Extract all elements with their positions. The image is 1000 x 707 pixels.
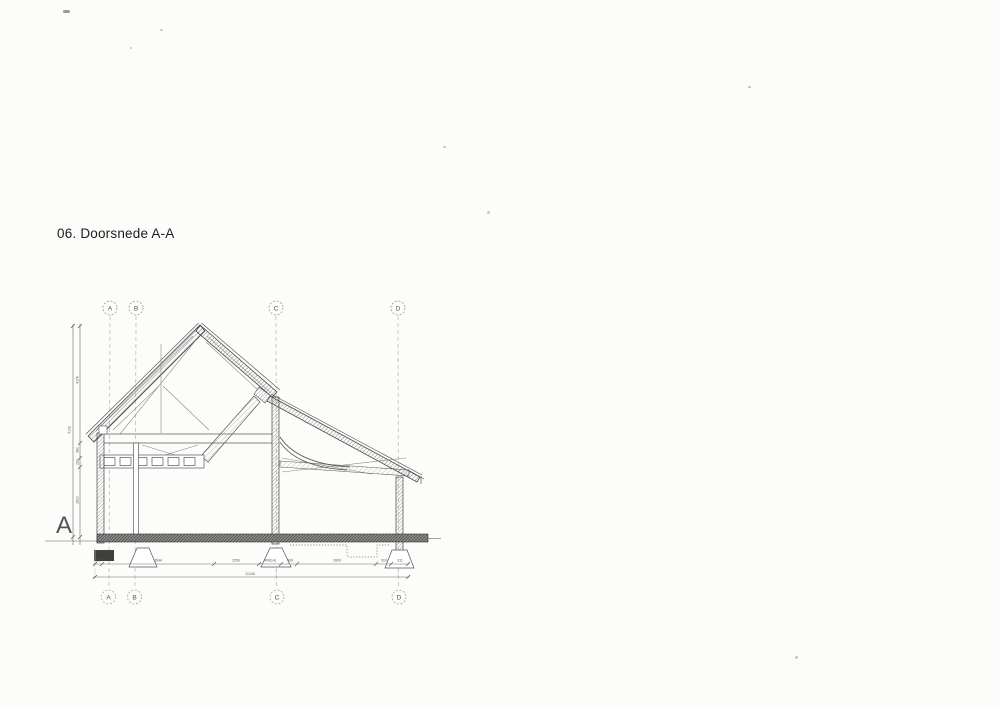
dim-seg-5: 909 — [287, 559, 293, 563]
dim-seg-6: 2600 — [333, 559, 341, 563]
grid-label-b-top: B — [134, 305, 138, 312]
grid-label-d-bottom: D — [397, 594, 402, 601]
grid-label-c-bottom: C — [275, 594, 280, 601]
column-grid-c — [272, 397, 279, 544]
dim-ticks-vert — [71, 324, 82, 539]
roof-left-outer-line — [86, 323, 199, 434]
dim-seg-7: 910 — [381, 559, 387, 563]
wall-plate-left — [99, 426, 107, 434]
steep-strut — [201, 396, 260, 462]
grid-lines — [109, 316, 399, 588]
ceiling-joist-band — [100, 455, 204, 468]
dim-seg-1: 235 — [95, 559, 101, 563]
dim-vert-seg-2: 580 — [76, 447, 80, 453]
roof-band-left — [88, 325, 205, 442]
left-wall — [97, 433, 104, 543]
dim-vert-seg-3: 290 — [76, 459, 80, 465]
dim-seg-4: 409(14) — [264, 559, 276, 563]
section-marker-label: A — [56, 512, 72, 539]
dim-vert-seg-1: 4176 — [76, 376, 80, 384]
grid-label-c-top: C — [274, 305, 279, 312]
grid-label-a-bottom: A — [106, 594, 111, 601]
foundation-dotted-outline — [290, 545, 389, 557]
walls-columns — [97, 397, 403, 552]
dim-seg-2: 3544 — [154, 559, 162, 563]
grid-label-d-top: D — [396, 305, 401, 312]
dim-total-width: 11248 — [245, 572, 254, 576]
post-grid-b — [134, 443, 139, 535]
grid-bubbles-top: A B C D — [103, 301, 405, 315]
grid-bubbles-bottom: A B C D — [102, 590, 407, 604]
dim-vert-seg-4: 2600 — [76, 496, 80, 504]
grid-label-a-top: A — [108, 305, 113, 312]
dim-seg-8: 311 — [397, 559, 403, 563]
roof-right-outer-line — [202, 323, 281, 390]
dim-vert-total: 7106 — [68, 426, 72, 434]
scanned-page: 06. Doorsnede A-A — [0, 0, 1000, 707]
grid-label-b-bottom: B — [132, 594, 136, 601]
roof-band-right — [196, 325, 277, 397]
tie-beam — [104, 434, 272, 443]
section-drawing: A B C D A B C D — [0, 0, 1000, 707]
floor-foundations — [94, 534, 428, 568]
dim-seg-3: 2250 — [232, 559, 240, 563]
floor-slab — [97, 534, 428, 542]
